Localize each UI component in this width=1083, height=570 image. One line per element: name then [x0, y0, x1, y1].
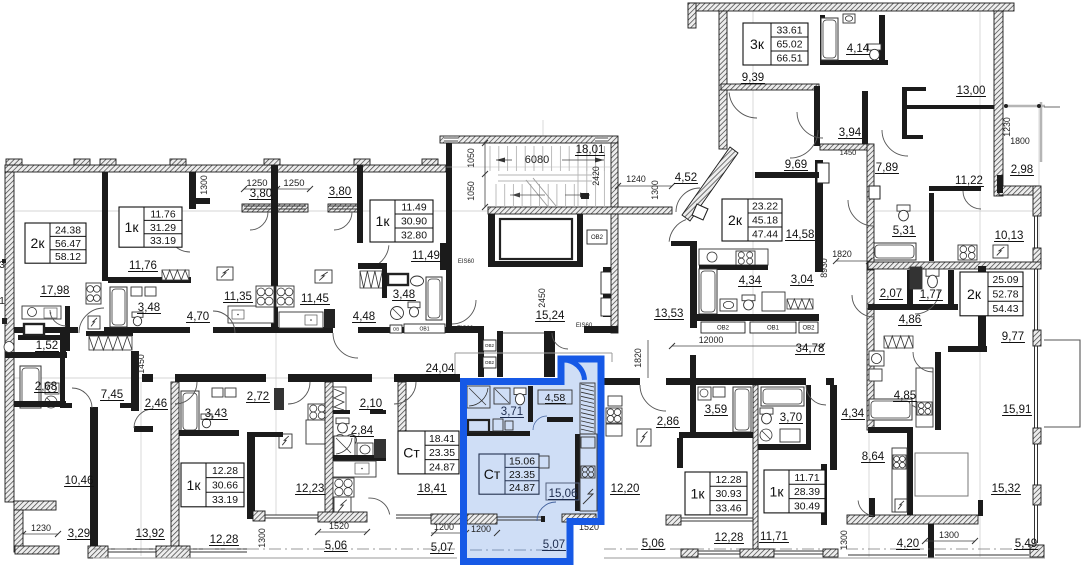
svg-text:7,45: 7,45 — [101, 389, 123, 401]
svg-text:4,70: 4,70 — [187, 311, 209, 323]
svg-text:2,07: 2,07 — [880, 288, 902, 300]
svg-text:11.76: 11.76 — [150, 209, 175, 220]
svg-text:1к: 1к — [187, 477, 202, 493]
svg-text:EIS60: EIS60 — [457, 326, 474, 332]
svg-text:9,69: 9,69 — [785, 159, 807, 171]
svg-text:5,06: 5,06 — [642, 538, 664, 550]
svg-text:5,06: 5,06 — [325, 540, 347, 552]
svg-text:24.87: 24.87 — [429, 462, 455, 473]
svg-text:47.44: 47.44 — [752, 230, 778, 241]
svg-text:1: 1 — [0, 296, 5, 307]
svg-text:17,98: 17,98 — [41, 285, 70, 297]
svg-text:1820: 1820 — [633, 348, 643, 368]
svg-text:11,49: 11,49 — [412, 250, 440, 262]
svg-text:66.51: 66.51 — [776, 54, 802, 65]
svg-text:1300: 1300 — [839, 530, 849, 550]
svg-text:1к: 1к — [125, 219, 140, 235]
svg-text:10,46: 10,46 — [65, 475, 94, 487]
svg-text:4,85: 4,85 — [894, 390, 916, 402]
svg-text:30.90: 30.90 — [401, 217, 427, 228]
svg-text:2450: 2450 — [537, 288, 547, 308]
svg-text:2к: 2к — [967, 286, 982, 302]
svg-text:2,86: 2,86 — [657, 416, 679, 428]
svg-text:3: 3 — [0, 260, 5, 271]
svg-text:15,06: 15,06 — [549, 488, 578, 500]
svg-text:12.28: 12.28 — [715, 475, 741, 486]
svg-text:65.02: 65.02 — [776, 40, 802, 51]
svg-text:1820: 1820 — [832, 249, 852, 259]
svg-text:1230: 1230 — [31, 523, 51, 533]
svg-text:11,71: 11,71 — [760, 531, 788, 543]
svg-text:8,64: 8,64 — [862, 451, 885, 463]
svg-text:1300: 1300 — [257, 528, 267, 548]
svg-text:5,31: 5,31 — [893, 225, 915, 237]
svg-text:13,53: 13,53 — [655, 308, 684, 320]
svg-text:3,70: 3,70 — [780, 412, 802, 424]
svg-text:ОВ2: ОВ2 — [485, 360, 495, 365]
svg-text:EIS60: EIS60 — [576, 323, 593, 329]
svg-text:13,00: 13,00 — [957, 85, 986, 97]
svg-text:24,04: 24,04 — [426, 363, 455, 375]
svg-text:1230: 1230 — [1002, 117, 1012, 137]
svg-text:3,43: 3,43 — [205, 408, 227, 420]
svg-text:3,04: 3,04 — [791, 274, 814, 286]
svg-text:ОВ: ОВ — [393, 327, 400, 332]
svg-text:12.28: 12.28 — [212, 466, 238, 477]
svg-text:7,89: 7,89 — [876, 162, 898, 174]
svg-text:33.46: 33.46 — [715, 503, 741, 514]
svg-text:1250: 1250 — [283, 178, 304, 189]
svg-text:25.09: 25.09 — [992, 275, 1018, 286]
svg-text:2420: 2420 — [591, 166, 601, 186]
svg-text:4,14: 4,14 — [847, 43, 870, 55]
svg-text:12,20: 12,20 — [611, 483, 640, 495]
svg-text:24.38: 24.38 — [55, 225, 81, 236]
svg-text:18,41: 18,41 — [418, 483, 447, 495]
svg-text:Ст: Ст — [403, 444, 420, 460]
svg-text:ОВ1: ОВ1 — [767, 326, 780, 332]
svg-text:1200: 1200 — [471, 524, 491, 534]
svg-text:3,94: 3,94 — [839, 127, 862, 139]
svg-text:30.49: 30.49 — [794, 501, 820, 512]
svg-text:56.47: 56.47 — [55, 239, 81, 250]
svg-text:11.71: 11.71 — [794, 473, 819, 484]
svg-text:2к: 2к — [728, 212, 743, 228]
svg-text:1к: 1к — [770, 483, 785, 499]
svg-text:12,28: 12,28 — [210, 534, 239, 546]
svg-text:13,92: 13,92 — [136, 528, 165, 540]
svg-text:15,32: 15,32 — [992, 483, 1021, 495]
svg-text:33.19: 33.19 — [150, 236, 176, 247]
svg-text:4,34: 4,34 — [739, 275, 762, 287]
svg-text:1300: 1300 — [650, 180, 660, 200]
svg-text:1,77: 1,77 — [920, 289, 942, 301]
svg-text:2,72: 2,72 — [247, 391, 269, 403]
svg-text:11.49: 11.49 — [401, 203, 426, 214]
svg-text:ОВ2: ОВ2 — [485, 343, 495, 348]
svg-text:8930: 8930 — [819, 258, 829, 278]
svg-text:4,34: 4,34 — [842, 408, 865, 420]
svg-text:2к: 2к — [31, 235, 46, 251]
svg-text:11,45: 11,45 — [301, 293, 329, 305]
svg-text:5,49: 5,49 — [1015, 538, 1037, 550]
svg-text:33.19: 33.19 — [212, 495, 238, 506]
svg-text:32.80: 32.80 — [401, 231, 427, 242]
svg-text:1300: 1300 — [939, 530, 959, 540]
svg-text:15,24: 15,24 — [536, 310, 565, 322]
svg-text:3,80: 3,80 — [329, 186, 351, 198]
svg-text:15.06: 15.06 — [509, 456, 535, 467]
svg-text:1050: 1050 — [466, 181, 476, 201]
svg-text:1450: 1450 — [136, 354, 146, 374]
svg-text:45.18: 45.18 — [752, 216, 778, 227]
svg-text:58.12: 58.12 — [55, 252, 81, 263]
svg-text:5,07: 5,07 — [431, 542, 453, 554]
svg-text:12,23: 12,23 — [296, 483, 325, 495]
svg-text:31.29: 31.29 — [150, 223, 176, 234]
svg-text:28.39: 28.39 — [794, 487, 820, 498]
svg-text:23.22: 23.22 — [752, 202, 778, 213]
svg-text:15,91: 15,91 — [1003, 404, 1032, 416]
svg-text:1к: 1к — [376, 213, 391, 229]
svg-text:12,28: 12,28 — [715, 532, 744, 544]
svg-text:3,71: 3,71 — [501, 406, 523, 418]
svg-text:1800: 1800 — [1010, 136, 1030, 146]
svg-text:14,58: 14,58 — [786, 229, 815, 241]
svg-text:11,22: 11,22 — [955, 175, 983, 187]
svg-text:1050: 1050 — [466, 148, 476, 168]
svg-text:4,86: 4,86 — [899, 314, 921, 326]
svg-text:1450: 1450 — [840, 148, 857, 157]
svg-text:30.93: 30.93 — [715, 489, 741, 500]
svg-text:4,58: 4,58 — [545, 392, 566, 404]
svg-text:9,77: 9,77 — [1002, 331, 1024, 343]
svg-text:4,20: 4,20 — [897, 538, 919, 550]
svg-text:EIS60: EIS60 — [458, 259, 475, 265]
svg-text:54.43: 54.43 — [992, 304, 1018, 315]
svg-text:ОВ1: ОВ1 — [419, 326, 429, 332]
svg-text:24.87: 24.87 — [509, 483, 535, 494]
svg-text:3,48: 3,48 — [393, 289, 415, 301]
svg-text:1200: 1200 — [434, 522, 454, 532]
svg-text:23.35: 23.35 — [509, 470, 535, 481]
svg-text:12000: 12000 — [699, 335, 724, 345]
svg-text:52.78: 52.78 — [992, 290, 1018, 301]
svg-text:4,52: 4,52 — [675, 172, 697, 184]
svg-text:3,59: 3,59 — [705, 404, 727, 416]
svg-text:1300: 1300 — [199, 175, 209, 195]
svg-text:9,39: 9,39 — [742, 72, 764, 84]
svg-text:1,52: 1,52 — [36, 340, 58, 352]
svg-text:23.35: 23.35 — [429, 448, 455, 459]
svg-text:3,80: 3,80 — [250, 188, 272, 200]
svg-text:2,10: 2,10 — [360, 398, 382, 410]
svg-text:3к: 3к — [750, 36, 765, 52]
svg-text:ОВ2: ОВ2 — [591, 235, 604, 241]
svg-text:2,46: 2,46 — [145, 398, 167, 410]
svg-text:10,13: 10,13 — [995, 230, 1024, 242]
svg-text:ОВ2: ОВ2 — [802, 326, 815, 332]
svg-text:1240: 1240 — [626, 174, 646, 184]
svg-text:ОВ2: ОВ2 — [717, 326, 730, 332]
svg-text:34,78: 34,78 — [796, 343, 825, 355]
svg-text:30.66: 30.66 — [212, 481, 238, 492]
svg-text:2,68: 2,68 — [35, 381, 57, 393]
svg-text:3,29: 3,29 — [68, 528, 90, 540]
svg-text:2,84: 2,84 — [351, 425, 374, 437]
svg-text:18,01: 18,01 — [576, 144, 605, 156]
svg-text:Ст: Ст — [484, 466, 501, 482]
svg-text:18.41: 18.41 — [429, 434, 455, 445]
svg-text:3,48: 3,48 — [138, 302, 160, 314]
svg-text:6080: 6080 — [525, 154, 549, 166]
svg-text:1к: 1к — [691, 485, 706, 501]
svg-text:11,76: 11,76 — [129, 260, 157, 272]
svg-text:33.61: 33.61 — [776, 26, 802, 37]
svg-text:2,98: 2,98 — [1011, 164, 1033, 176]
svg-text:4,48: 4,48 — [353, 311, 375, 323]
svg-text:1520: 1520 — [329, 521, 349, 531]
svg-text:5,07: 5,07 — [543, 539, 565, 551]
svg-text:11,35: 11,35 — [224, 291, 252, 303]
